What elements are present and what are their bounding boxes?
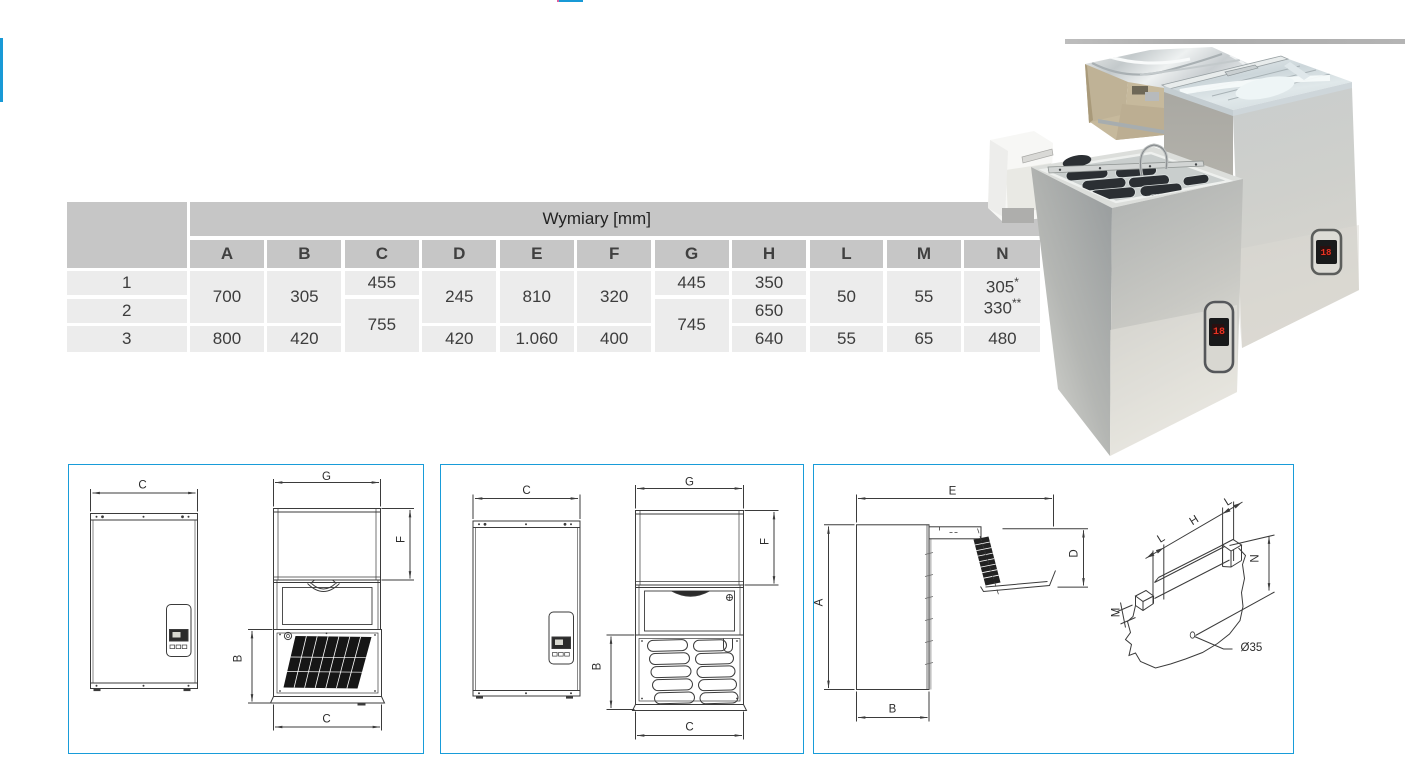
svg-text:L: L xyxy=(1155,532,1167,546)
svg-text:G: G xyxy=(685,477,694,489)
svg-text:B: B xyxy=(233,654,245,662)
svg-text:L: L xyxy=(1222,495,1234,509)
svg-text:D: D xyxy=(1069,549,1081,557)
svg-text:C: C xyxy=(322,714,330,726)
svg-text:H: H xyxy=(1188,513,1201,528)
svg-text:18: 18 xyxy=(1321,248,1332,258)
svg-text:A: A xyxy=(814,598,826,606)
svg-text:C: C xyxy=(522,485,530,497)
svg-text:Ø35: Ø35 xyxy=(1241,642,1263,654)
svg-text:18: 18 xyxy=(1213,327,1225,338)
svg-text:C: C xyxy=(138,480,146,492)
svg-text:F: F xyxy=(396,536,408,543)
svg-text:B: B xyxy=(592,662,604,670)
svg-text:F: F xyxy=(760,538,772,545)
svg-text:C: C xyxy=(685,722,693,734)
svg-text:G: G xyxy=(322,471,331,483)
svg-text:B: B xyxy=(889,704,897,716)
svg-text:M: M xyxy=(1111,608,1123,618)
svg-text:N: N xyxy=(1250,554,1262,562)
svg-text:E: E xyxy=(949,486,957,498)
